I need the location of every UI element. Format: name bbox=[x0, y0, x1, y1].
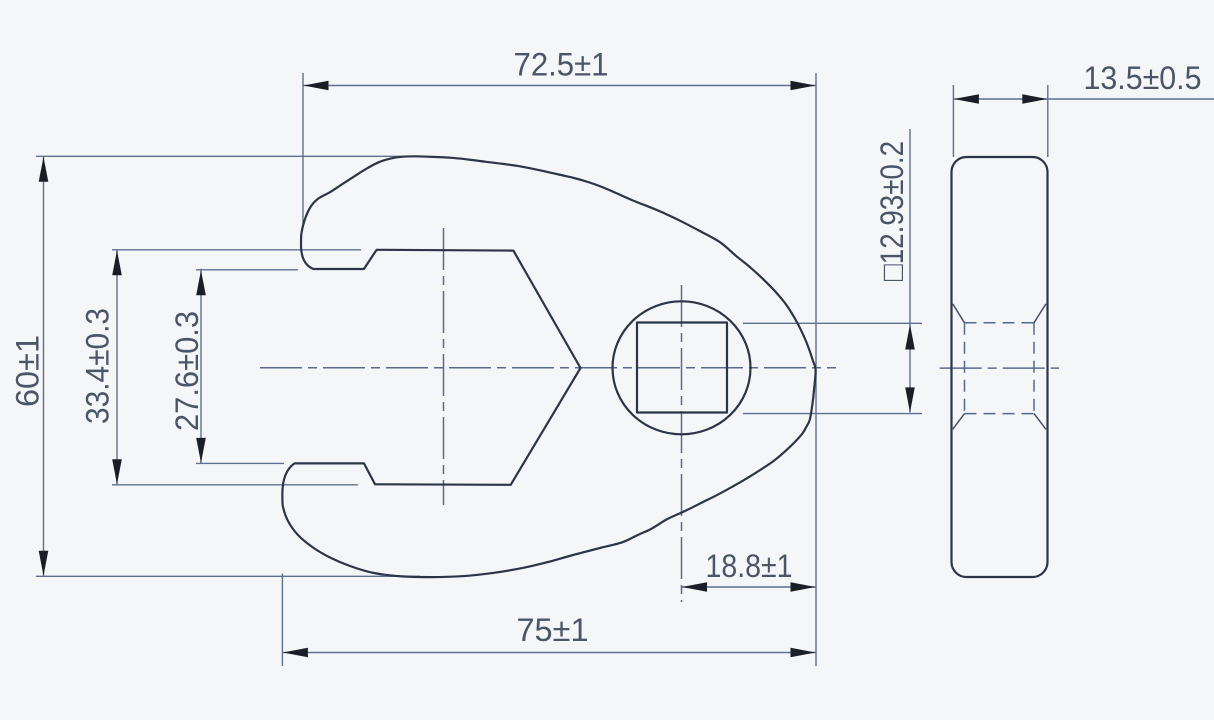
svg-text:60±1: 60±1 bbox=[10, 335, 46, 407]
svg-text:□12.93±0.2: □12.93±0.2 bbox=[874, 141, 910, 281]
svg-text:13.5±0.5: 13.5±0.5 bbox=[1084, 60, 1202, 96]
svg-text:72.5±1: 72.5±1 bbox=[514, 47, 609, 83]
svg-text:27.6±0.3: 27.6±0.3 bbox=[169, 311, 205, 431]
svg-text:33.4±0.3: 33.4±0.3 bbox=[80, 308, 116, 424]
svg-text:75±1: 75±1 bbox=[517, 612, 589, 648]
svg-text:18.8±1: 18.8±1 bbox=[706, 548, 793, 584]
